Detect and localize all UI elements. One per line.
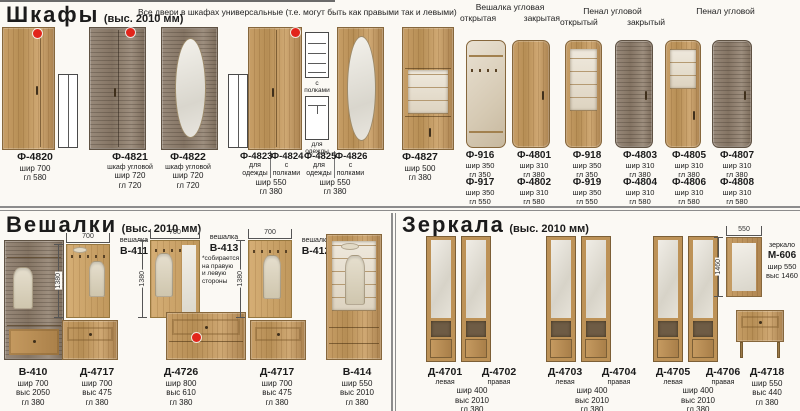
product-label-v414: В-414 шир 550 выс 2010 гл 380 xyxy=(326,366,388,407)
product-label-f4808: Ф-4808 шир 310 гл 580 xyxy=(710,177,764,206)
wardrobe-outline-sketch xyxy=(228,74,248,148)
product-code: М-606 xyxy=(764,250,800,262)
coat-illustration xyxy=(89,261,105,297)
shelves-icon xyxy=(305,32,329,78)
section-height-note: (выс. 2010 мм) xyxy=(509,223,589,235)
open-shelves xyxy=(570,49,597,111)
product-label-f4804: Ф-4804 шир 310 гл 580 xyxy=(613,177,667,206)
height-dimension: 1380 xyxy=(236,240,245,318)
product-dims: шир 400 выс 2010 гл 380 xyxy=(538,386,646,411)
product-dims: шир 550 выс 1460 xyxy=(764,262,800,280)
mirror-glass xyxy=(431,240,451,318)
hat-illustration xyxy=(73,247,87,253)
group-header-title: Пенал угловой xyxy=(560,7,665,16)
wall-mirror-photo-m606 xyxy=(726,237,762,297)
oval-mirror xyxy=(347,36,376,141)
group-header-title: Вешалка угловая xyxy=(460,3,560,12)
mirror-unit-photo-d4702 xyxy=(461,236,491,362)
drawer-unit-photo-d4717 xyxy=(250,320,306,360)
pair-left: Д-4705 левая xyxy=(648,366,698,386)
product-label-v410: В-410 шир 700 выс 2050 гл 380 xyxy=(2,366,64,407)
door-handle xyxy=(542,91,544,100)
product-label-d4717: Д-4717 шир 700 выс 475 гл 380 xyxy=(66,366,128,407)
group-header-sub-closed: закрытая xyxy=(524,13,560,23)
product-desc: левая xyxy=(418,379,472,387)
mirror-pair-label-d4705-d4706: Д-4705 левая Д-4706 правая шир 400 выс 2… xyxy=(648,366,748,411)
product-code: Д-4704 xyxy=(592,366,646,379)
product-label-f917: Ф-917 шир 350 гл 550 xyxy=(453,177,507,206)
corner-cabinet-open-photo xyxy=(565,40,602,148)
product-dims: шир 310 гл 580 xyxy=(613,189,667,206)
product-code: Д-4717 xyxy=(66,366,128,379)
door-handle xyxy=(114,88,116,97)
panel-mirror xyxy=(182,245,196,313)
oval-mirror xyxy=(175,38,206,138)
drawer-unit-photo-d4717 xyxy=(62,320,118,360)
product-code: Ф-4824 xyxy=(271,151,302,162)
product-dims: шир 500 гл 380 xyxy=(388,164,452,183)
red-dot-marker xyxy=(192,333,201,342)
hat-illustration xyxy=(341,243,359,250)
product-code: Д-4726 xyxy=(150,366,212,379)
shelf-line xyxy=(469,131,503,133)
coat-illustration xyxy=(345,255,365,305)
product-desc: с полками xyxy=(335,162,366,177)
product-dims: шир 700 гл 580 xyxy=(3,164,67,183)
width-dimension: 700 xyxy=(248,229,292,239)
cabinet-door xyxy=(430,339,452,358)
coat-illustration xyxy=(263,255,281,299)
door-handle xyxy=(693,111,695,120)
product-dims: шир 720 гл 720 xyxy=(152,171,224,190)
open-shelves xyxy=(670,49,696,89)
group-header-corner-hanger: Вешалка угловая открытая закрытая xyxy=(460,3,560,23)
wardrobe-photo-f4823-f4824 xyxy=(248,27,302,150)
drawer-unit-photo-d4726 xyxy=(166,312,246,360)
door-seam xyxy=(118,30,119,147)
section-title-text: Зеркала xyxy=(402,212,505,237)
product-pair-label-f4823-f4824: Ф-4823 для одежды Ф-4824 с полками шир 5… xyxy=(240,151,302,197)
coat-illustration xyxy=(13,267,33,309)
door-handle xyxy=(744,91,746,100)
product-code: В-414 xyxy=(326,366,388,379)
shelf-line xyxy=(405,68,451,69)
width-dimension: 700 xyxy=(66,233,110,243)
red-dot-marker xyxy=(291,28,300,37)
mirror-glass xyxy=(551,240,571,318)
wall-mirror-label: зеркало М-606 шир 550 выс 1460 xyxy=(764,242,800,280)
product-desc: для одежды xyxy=(240,162,270,177)
corner-hanger-closed-photo xyxy=(512,40,550,148)
shelf-line xyxy=(308,63,326,64)
group-header-title: Пенал угловой xyxy=(668,7,783,16)
drawer-knob xyxy=(277,333,280,336)
red-dot-marker xyxy=(33,29,42,38)
door-handle xyxy=(36,86,38,95)
product-dims: шир 550 выс 440 гл 380 xyxy=(736,379,798,408)
mirror-glass xyxy=(466,240,486,318)
drawer-knob xyxy=(33,340,36,343)
door-handle xyxy=(429,128,431,137)
product-desc: для одежды xyxy=(304,162,334,177)
open-niche xyxy=(658,321,678,337)
shelf-line xyxy=(308,72,326,73)
product-desc: шкаф угловой xyxy=(152,164,224,172)
coat-illustration xyxy=(155,253,173,297)
pair-right: Д-4702 правая xyxy=(472,366,526,386)
mirror-glass xyxy=(586,240,606,318)
shelves-icon-label: с полками xyxy=(299,80,335,94)
product-label-f4803: Ф-4803 шир 310 гл 380 xyxy=(613,150,667,179)
cabinet-door xyxy=(657,339,679,358)
wardrobe-outline-sketch xyxy=(58,74,78,148)
product-label-d4726: Д-4726 шир 800 выс 610 гл 380 xyxy=(150,366,212,407)
mirror-glass xyxy=(693,240,713,318)
open-shelves xyxy=(408,70,448,114)
hanger-hook xyxy=(317,106,318,114)
corner-cabinet-closed-photo xyxy=(615,40,653,148)
door-seam xyxy=(276,30,277,147)
red-dot-marker xyxy=(126,28,135,37)
shelf-line xyxy=(7,257,61,258)
mirror-unit-photo-d4703 xyxy=(546,236,576,362)
product-label-f916: Ф-916 шир 350 гл 350 xyxy=(453,150,507,179)
product-dims: шир 700 выс 475 гл 380 xyxy=(66,379,128,408)
height-dimension: 1380 xyxy=(138,240,147,318)
height-dimension-value: 1380 xyxy=(139,270,146,288)
shelf-line xyxy=(308,53,326,54)
height-dimension: 1380 xyxy=(54,244,63,318)
product-desc: левая xyxy=(538,379,592,387)
height-dimension-value: 1380 xyxy=(55,272,62,290)
sketch-door-line xyxy=(238,75,239,147)
pair-left: Ф-4823 для одежды xyxy=(240,151,271,178)
product-label-f4822: Ф-4822 шкаф угловой шир 720 гл 720 xyxy=(152,151,224,190)
hook-row xyxy=(253,250,287,253)
product-dims: шир 310 гл 580 xyxy=(662,189,716,206)
corner-cabinet-photo-f4805 xyxy=(665,40,701,148)
product-kind: зеркало xyxy=(764,242,800,250)
product-code: Ф-4827 xyxy=(388,151,452,164)
product-dims: шир 310 гл 580 xyxy=(507,189,561,206)
wardrobe-photo-f4822 xyxy=(161,27,218,150)
product-dims: шир 400 выс 2010 гл 380 xyxy=(648,386,748,411)
height-dimension: 1460 xyxy=(714,237,723,297)
mirror-glass xyxy=(732,243,756,291)
product-code: Д-4703 xyxy=(538,366,592,379)
shelf-line xyxy=(329,343,379,344)
product-dims: шир 350 гл 550 xyxy=(560,189,614,206)
mirror-unit-photo-d4705 xyxy=(653,236,683,362)
shelf-line xyxy=(469,55,503,57)
product-code: Ф-4820 xyxy=(3,151,67,164)
horizontal-divider xyxy=(0,206,800,211)
shelf-line xyxy=(7,325,61,326)
shelf-line xyxy=(308,43,326,44)
product-code: Д-4717 xyxy=(246,366,308,379)
product-dims: шир 700 выс 475 гл 380 xyxy=(246,379,308,408)
open-niche xyxy=(466,321,486,337)
product-label-f4802: Ф-4802 шир 310 гл 580 xyxy=(507,177,561,206)
vertical-divider xyxy=(391,213,396,411)
group-header-corner-cabinet-2: Пенал угловой xyxy=(668,7,783,16)
hanger-photo-v414 xyxy=(326,234,382,360)
pair-right: Ф-4826 с полками xyxy=(335,151,366,178)
open-niche xyxy=(551,321,571,337)
door-handle xyxy=(272,88,274,97)
catalog-page: Шкафы (выс. 2010 мм) Все двери в шкафах … xyxy=(0,0,800,411)
drawer-knob xyxy=(89,333,92,336)
product-desc: левая xyxy=(648,379,698,387)
product-desc: правая xyxy=(592,379,646,387)
product-dims: шир 700 выс 2050 гл 380 xyxy=(2,379,64,408)
pair-right: Д-4704 правая xyxy=(592,366,646,386)
product-label-f4820: Ф-4820 шир 700 гл 580 xyxy=(3,151,67,183)
hook-row xyxy=(71,255,105,258)
product-pair-label-f4825-f4826: Ф-4825 для одежды Ф-4826 с полками шир 5… xyxy=(304,151,366,197)
wardrobe-photo-f4825-f4826 xyxy=(337,27,384,150)
table-leg xyxy=(777,342,780,358)
mirrors-section-title: Зеркала (выс. 2010 мм) xyxy=(402,214,589,237)
pair-left: Ф-4825 для одежды xyxy=(304,151,335,178)
product-desc: с полками xyxy=(271,162,302,177)
group-header-sub-open: открытый xyxy=(560,17,598,27)
wardrobe-photo-f4821 xyxy=(89,27,146,150)
door-seam xyxy=(40,30,41,147)
universal-doors-note: Все двери в шкафах универсальные (т.е. м… xyxy=(138,7,468,17)
height-dimension-value: 1380 xyxy=(237,270,244,288)
product-code: Ф-4825 xyxy=(304,151,334,162)
product-dims: шир 800 выс 610 гл 380 xyxy=(150,379,212,408)
mirror-pair-label-d4703-d4704: Д-4703 левая Д-4704 правая шир 400 выс 2… xyxy=(538,366,646,411)
height-dimension-value: 1460 xyxy=(715,258,722,276)
product-dims: шир 400 выс 2010 гл 380 xyxy=(418,386,526,411)
product-label-f4806: Ф-4806 шир 310 гл 580 xyxy=(662,177,716,206)
door-handle xyxy=(645,91,647,100)
cabinet-door xyxy=(692,339,714,358)
product-label-f4801: Ф-4801 шир 310 гл 380 xyxy=(507,150,561,179)
open-niche xyxy=(586,321,606,337)
cabinet-door xyxy=(465,339,487,358)
mirror-pair-label-d4701-d4702: Д-4701 левая Д-4702 правая шир 400 выс 2… xyxy=(418,366,526,411)
corner-hanger-open-photo xyxy=(466,40,506,148)
drawer-knob xyxy=(205,326,208,329)
product-dims: шир 350 гл 550 xyxy=(453,189,507,206)
hook-row xyxy=(471,69,501,72)
sketch-door-line xyxy=(68,75,69,147)
table-leg xyxy=(740,342,743,358)
product-label-d4718: Д-4718 шир 550 выс 440 гл 380 xyxy=(736,366,798,407)
product-label-f918: Ф-918 шир 350 гл 350 xyxy=(560,150,614,179)
product-code: Д-4705 xyxy=(648,366,698,379)
corner-cabinet-photo-f4807 xyxy=(712,40,752,148)
shelf-line xyxy=(405,116,451,117)
pair-left: Д-4703 левая xyxy=(538,366,592,386)
product-label-f4807: Ф-4807 шир 310 гл 380 xyxy=(710,150,764,179)
product-code: Д-4701 xyxy=(418,366,472,379)
cabinet-door xyxy=(585,339,607,358)
product-code: Д-4718 xyxy=(736,366,798,379)
mirror-glass xyxy=(658,240,678,318)
drawer-knob xyxy=(759,321,762,324)
shelf-line xyxy=(169,341,243,342)
mirror-unit-photo-d4701 xyxy=(426,236,456,362)
product-code: В-410 xyxy=(2,366,64,379)
cabinet-photo-f4827 xyxy=(402,27,454,150)
mirror-unit-photo-d4704 xyxy=(581,236,611,362)
product-dims: шир 550 гл 380 xyxy=(240,178,302,197)
product-label-f919: Ф-919 шир 350 гл 550 xyxy=(560,177,614,206)
dressing-table-photo-d4718 xyxy=(736,310,784,342)
pair-right: Ф-4824 с полками xyxy=(271,151,302,178)
product-code: Ф-4822 xyxy=(152,151,224,164)
clothes-rod-icon xyxy=(305,96,329,140)
product-code: Д-4702 xyxy=(472,366,526,379)
width-dimension: 550 xyxy=(726,226,762,236)
wardrobe-photo-f4820 xyxy=(2,27,55,150)
product-label-f4827: Ф-4827 шир 500 гл 380 xyxy=(388,151,452,183)
group-header-sub-open: открытая xyxy=(460,13,496,23)
open-niche xyxy=(431,321,451,337)
open-niche xyxy=(693,321,713,337)
pair-left: Д-4701 левая xyxy=(418,366,472,386)
product-code: Ф-4826 xyxy=(335,151,366,162)
shelf-line xyxy=(329,327,379,328)
group-header-corner-cabinet: Пенал угловой открытый закрытый xyxy=(560,7,665,27)
product-label-d4717-2: Д-4717 шир 700 выс 475 гл 380 xyxy=(246,366,308,407)
cabinet-door xyxy=(550,339,572,358)
product-dims: шир 310 гл 580 xyxy=(710,189,764,206)
hanger-panel-v413 xyxy=(150,240,200,318)
hanger-panel-v412 xyxy=(248,240,292,318)
hanger-panel-v411 xyxy=(66,244,110,318)
product-label-f4805: Ф-4805 шир 310 гл 380 xyxy=(662,150,716,179)
product-desc: правая xyxy=(472,379,526,387)
product-code: Ф-4823 xyxy=(240,151,270,162)
product-dims: шир 550 гл 380 xyxy=(304,178,366,197)
product-dims: шир 550 выс 2010 гл 380 xyxy=(326,379,388,408)
section-title-text: Шкафы xyxy=(6,2,99,27)
group-header-sub-closed: закрытый xyxy=(627,17,665,27)
width-dimension: 700 xyxy=(150,229,200,239)
